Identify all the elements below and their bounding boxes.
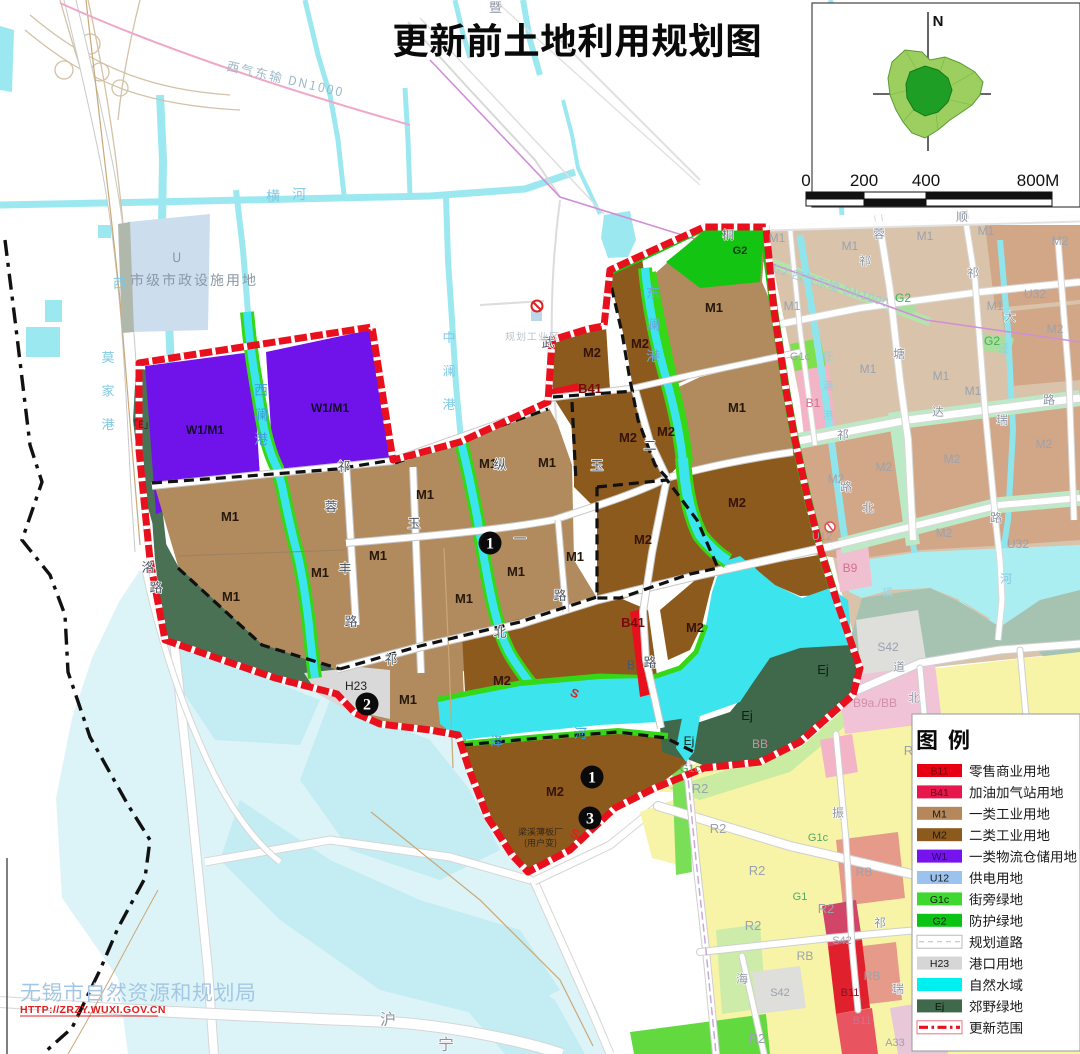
svg-text:M1: M1 bbox=[566, 549, 584, 564]
svg-text:M2: M2 bbox=[634, 532, 652, 547]
svg-text:M1: M1 bbox=[987, 299, 1004, 313]
svg-text:R2: R2 bbox=[749, 1031, 766, 1046]
svg-text:G1c: G1c bbox=[930, 894, 949, 906]
svg-text:HTTP://ZRZY.WUXI.GOV.CN: HTTP://ZRZY.WUXI.GOV.CN bbox=[20, 1004, 166, 1016]
svg-text:W1: W1 bbox=[932, 851, 948, 863]
svg-text:1: 1 bbox=[486, 536, 494, 553]
svg-text:R2: R2 bbox=[818, 901, 835, 916]
svg-text:0: 0 bbox=[801, 171, 810, 190]
svg-text:U12: U12 bbox=[930, 873, 949, 885]
svg-text:R2: R2 bbox=[692, 781, 709, 796]
svg-text:M2: M2 bbox=[619, 430, 637, 445]
svg-text:G2: G2 bbox=[895, 291, 911, 305]
svg-text:M1: M1 bbox=[860, 362, 877, 376]
svg-text:B11: B11 bbox=[931, 766, 949, 778]
svg-text:BB: BB bbox=[752, 737, 768, 751]
svg-text:B41: B41 bbox=[930, 787, 949, 799]
svg-text:B41: B41 bbox=[578, 381, 602, 396]
svg-text:2: 2 bbox=[363, 697, 371, 714]
svg-text:H23: H23 bbox=[345, 679, 367, 693]
svg-text:B11: B11 bbox=[841, 987, 860, 999]
svg-text:M2: M2 bbox=[583, 345, 601, 360]
svg-text:G1c: G1c bbox=[790, 351, 811, 363]
svg-text:M1: M1 bbox=[932, 808, 947, 820]
svg-text:G1c: G1c bbox=[808, 832, 829, 844]
svg-text:1: 1 bbox=[588, 770, 596, 787]
svg-text:W1/M1: W1/M1 bbox=[311, 401, 349, 415]
svg-text:S42: S42 bbox=[770, 987, 790, 999]
svg-text:M1: M1 bbox=[507, 564, 525, 579]
svg-text:M2: M2 bbox=[936, 526, 953, 540]
svg-text:B11: B11 bbox=[853, 1015, 872, 1027]
svg-text:B9a./BB: B9a./BB bbox=[853, 696, 897, 710]
svg-text:Ej: Ej bbox=[684, 734, 695, 748]
svg-text:M1: M1 bbox=[978, 224, 995, 238]
svg-text:M1: M1 bbox=[455, 591, 473, 606]
svg-text:M1: M1 bbox=[538, 455, 556, 470]
svg-text:B41: B41 bbox=[621, 615, 645, 630]
svg-text:M1: M1 bbox=[728, 400, 746, 415]
svg-text:U32: U32 bbox=[1007, 537, 1029, 551]
svg-text:B: B bbox=[627, 658, 635, 672]
svg-text:M1: M1 bbox=[933, 369, 950, 383]
svg-text:Ej: Ej bbox=[817, 662, 829, 677]
svg-text:200: 200 bbox=[850, 171, 878, 190]
svg-text:M1: M1 bbox=[784, 299, 801, 313]
svg-text:M2: M2 bbox=[944, 452, 961, 466]
svg-text:M1: M1 bbox=[842, 239, 859, 253]
svg-text:3: 3 bbox=[586, 811, 594, 828]
svg-text:M2: M2 bbox=[1047, 322, 1064, 336]
svg-text:RB: RB bbox=[797, 949, 814, 963]
svg-text:M1: M1 bbox=[705, 300, 723, 315]
svg-text:G2: G2 bbox=[733, 245, 748, 257]
svg-text:M2: M2 bbox=[1052, 234, 1069, 248]
svg-text:M1: M1 bbox=[917, 229, 934, 243]
svg-text:U32: U32 bbox=[1024, 287, 1046, 301]
svg-text:Ej: Ej bbox=[935, 1001, 944, 1013]
svg-text:M1: M1 bbox=[222, 589, 240, 604]
svg-text:G1: G1 bbox=[793, 891, 808, 903]
svg-text:M1: M1 bbox=[769, 231, 786, 245]
svg-text:B1: B1 bbox=[806, 396, 821, 410]
svg-text:M2: M2 bbox=[657, 424, 675, 439]
svg-text:M2: M2 bbox=[932, 830, 947, 842]
svg-text:M2: M2 bbox=[686, 620, 704, 635]
svg-text:W1/M1: W1/M1 bbox=[186, 423, 224, 437]
svg-text:400: 400 bbox=[912, 171, 940, 190]
svg-text:M2: M2 bbox=[1036, 437, 1053, 451]
svg-text:B9: B9 bbox=[843, 561, 858, 575]
svg-text:M2: M2 bbox=[493, 673, 511, 688]
svg-text:G2: G2 bbox=[932, 915, 946, 927]
svg-text:M2: M2 bbox=[546, 784, 564, 799]
svg-text:S42: S42 bbox=[832, 935, 852, 947]
svg-text:H23: H23 bbox=[930, 958, 949, 970]
svg-text:RB: RB bbox=[864, 969, 881, 983]
svg-text:R2: R2 bbox=[745, 918, 762, 933]
svg-text:R2: R2 bbox=[749, 863, 766, 878]
svg-text:M2: M2 bbox=[876, 460, 893, 474]
svg-text:G2: G2 bbox=[984, 334, 1000, 348]
svg-text:M1: M1 bbox=[311, 565, 329, 580]
svg-text:U12: U12 bbox=[812, 531, 832, 543]
svg-text:RB: RB bbox=[856, 865, 873, 879]
svg-text:M1: M1 bbox=[416, 487, 434, 502]
svg-text:M1: M1 bbox=[221, 509, 239, 524]
svg-text:M2: M2 bbox=[631, 336, 649, 351]
svg-text:M1: M1 bbox=[399, 692, 417, 707]
svg-text:M2: M2 bbox=[728, 495, 746, 510]
svg-text:S42: S42 bbox=[877, 640, 899, 654]
svg-text:Ej: Ej bbox=[741, 708, 753, 723]
svg-text:800M: 800M bbox=[1017, 171, 1060, 190]
svg-text:R2: R2 bbox=[710, 821, 727, 836]
svg-text:M1: M1 bbox=[965, 384, 982, 398]
svg-text:G1c: G1c bbox=[680, 763, 701, 775]
svg-text:A33: A33 bbox=[885, 1037, 905, 1049]
svg-text:N: N bbox=[933, 13, 944, 30]
svg-text:M1: M1 bbox=[369, 548, 387, 563]
